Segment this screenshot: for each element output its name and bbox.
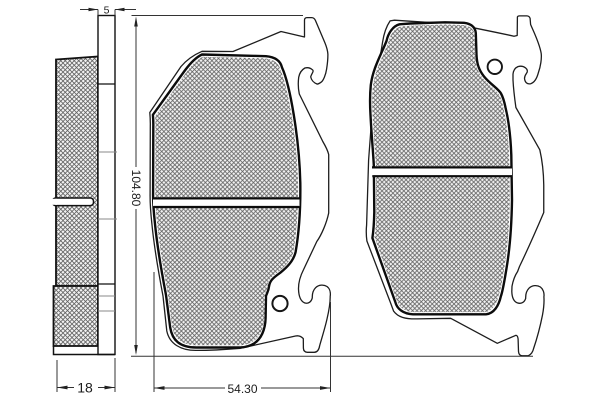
svg-text:18: 18 bbox=[77, 380, 93, 396]
svg-text:54.30: 54.30 bbox=[227, 382, 257, 396]
svg-text:5: 5 bbox=[104, 4, 110, 16]
svg-text:104.80: 104.80 bbox=[129, 170, 143, 207]
